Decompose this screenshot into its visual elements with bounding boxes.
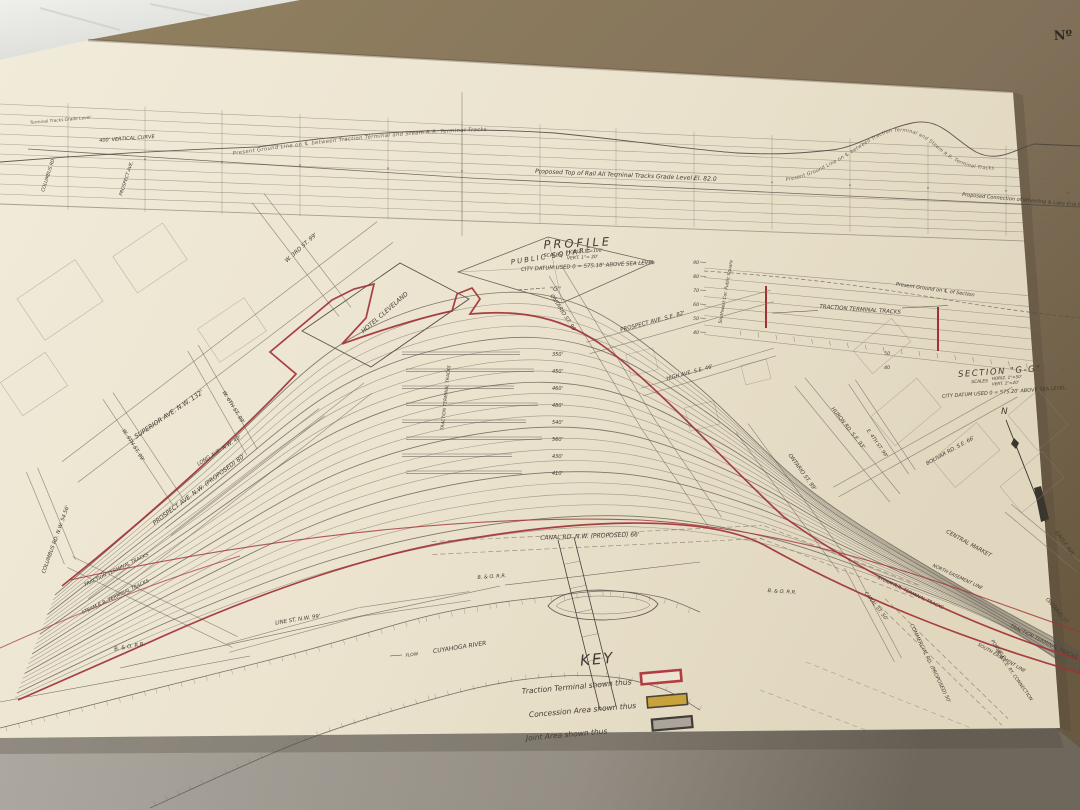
- platform-len-6: 430': [552, 454, 563, 460]
- platform-len-2: 460': [552, 386, 563, 392]
- profile-dot: [849, 184, 851, 186]
- elev-80: 80: [693, 274, 699, 280]
- profile-dot: [771, 181, 773, 183]
- profile-dot: [927, 187, 929, 189]
- profile-dot: [1005, 190, 1007, 192]
- key-swatch-concession: [647, 693, 688, 707]
- profile-dot: [1067, 192, 1069, 194]
- g-marker-label: "G": [550, 285, 561, 293]
- elev2-40: 40: [884, 365, 890, 371]
- platform-len-5: 560': [552, 437, 563, 443]
- profile-dot: [144, 158, 146, 160]
- profile-dot: [387, 167, 389, 169]
- platform-len-7: 410': [552, 471, 563, 477]
- key-title: KEY: [579, 649, 615, 670]
- elev-50: 50: [693, 316, 699, 322]
- elev2-50: 50: [884, 351, 890, 357]
- plan-photo-svg: Nº Present Ground Line on ℄ between Trac…: [0, 0, 1080, 810]
- north-letter: N: [1001, 407, 1008, 417]
- elev-90: 90: [693, 260, 699, 266]
- key-swatch-joint: [652, 716, 693, 730]
- platform-len-0: 350': [552, 352, 563, 358]
- photo-of-terminal-plan: Nº Present Ground Line on ℄ between Trac…: [0, 0, 1080, 810]
- elev-60: 60: [693, 302, 699, 308]
- key-swatch-traction: [641, 670, 682, 684]
- section-scales-word: SCALES: [971, 378, 988, 385]
- elev-70: 70: [693, 288, 699, 294]
- board-number-stamp: Nº: [1053, 28, 1073, 44]
- platform-len-4: 540': [552, 420, 563, 426]
- profile-dot: [299, 164, 301, 166]
- elev-40: 40: [693, 330, 699, 336]
- platform-len-3: 480': [552, 403, 563, 409]
- platform-len-1: 450': [552, 369, 563, 375]
